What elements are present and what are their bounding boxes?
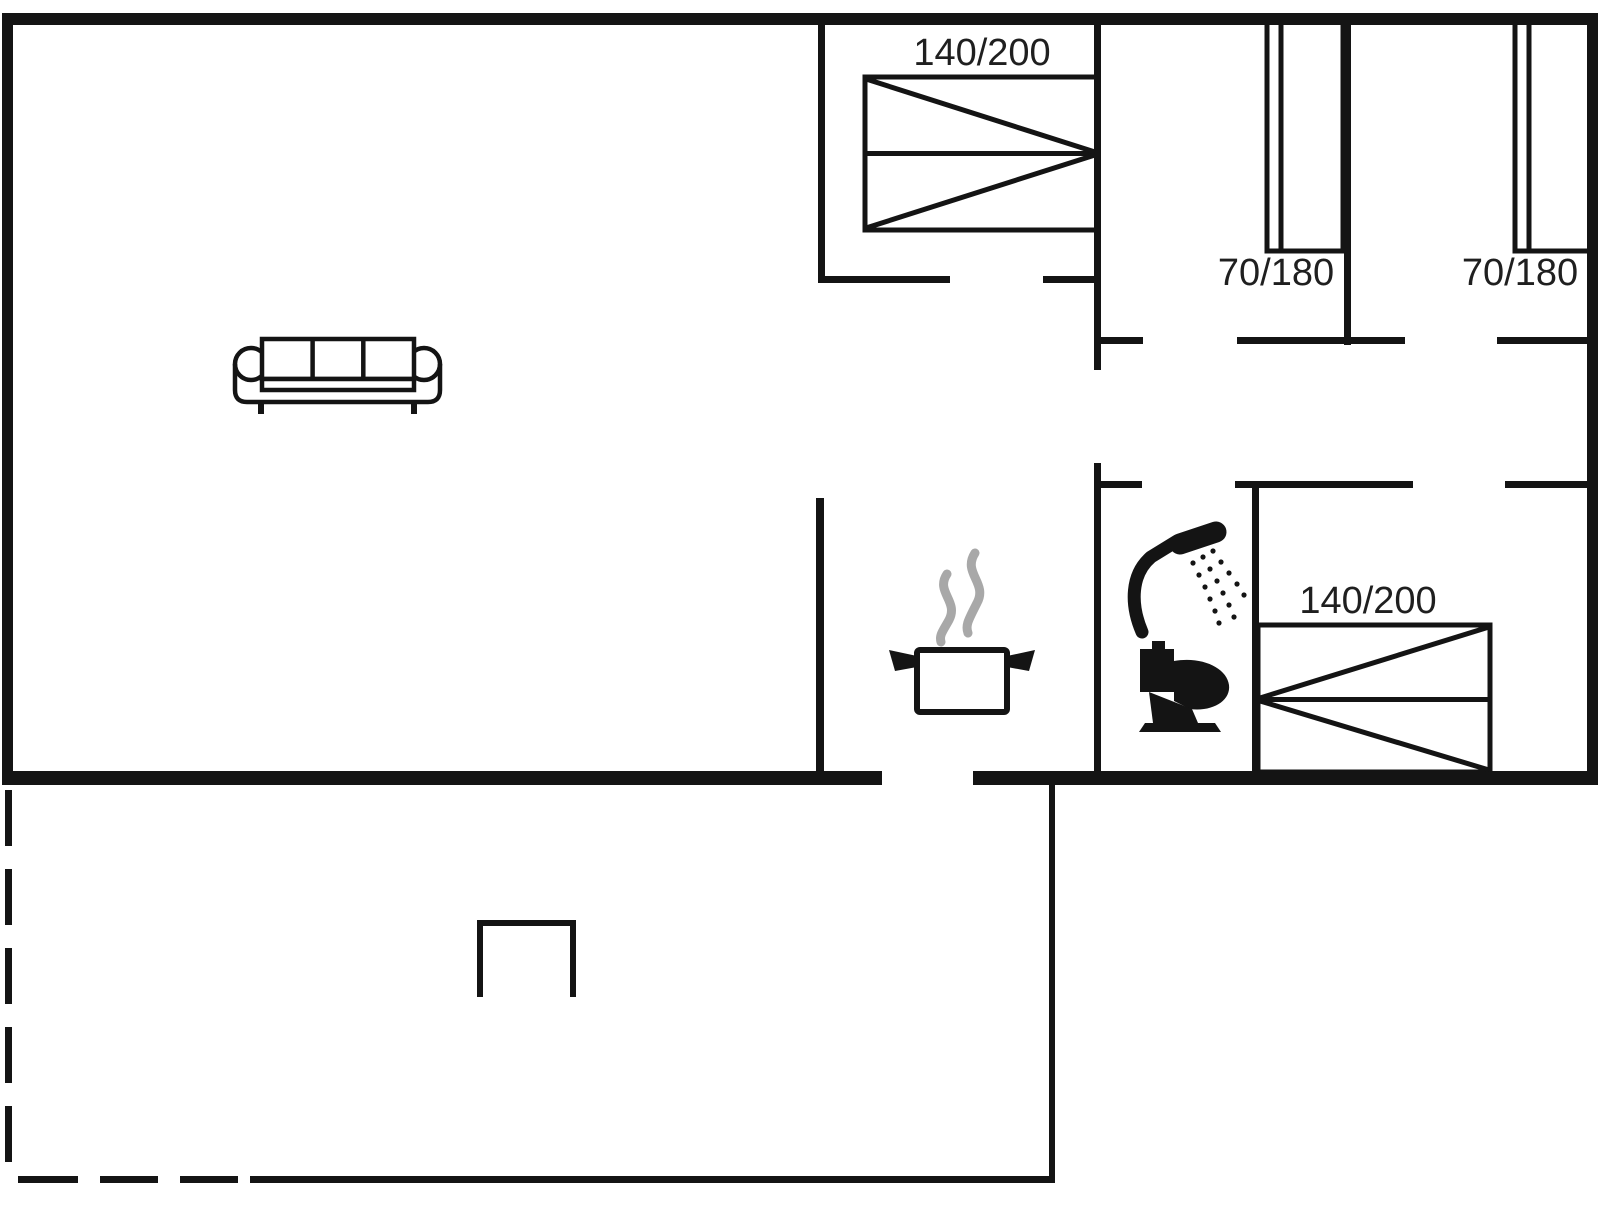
sofa-icon (235, 339, 440, 414)
toilet-foot (1139, 723, 1221, 732)
bed-fold (866, 79, 1095, 152)
bed-outline (1267, 20, 1343, 251)
toilet-icon (1139, 641, 1229, 732)
sofa-leg (411, 402, 417, 414)
bed-fold (866, 155, 1095, 228)
wall-segment (2, 771, 882, 785)
bed-fold (1260, 627, 1489, 698)
floor-plan: 140/200 70/180 70/180 140/200 (0, 0, 1606, 1205)
single-bed-icon (1267, 20, 1343, 251)
shower-icon (1134, 532, 1246, 632)
sofa-seat-band (262, 379, 414, 390)
bed-size-label-right-bedroom: 140/200 (1268, 582, 1468, 620)
double-bed-icon (865, 77, 1097, 230)
single-bed-icon (1515, 20, 1591, 251)
shower-head (1180, 532, 1216, 544)
wall-segment (1237, 337, 1405, 344)
cooking-pot-icon (889, 650, 1035, 712)
wall-segment (1497, 337, 1592, 344)
steam-icon (940, 553, 979, 642)
sofa-leg (258, 402, 264, 414)
double-bed-icon (1258, 625, 1490, 772)
sofa-back-cushions (262, 339, 414, 379)
shower-spray (1190, 548, 1246, 625)
bed-fold (1260, 701, 1489, 770)
terrace-dash (100, 1176, 158, 1183)
toilet-button (1152, 641, 1165, 650)
terrace-dash (18, 1176, 78, 1183)
wall-segment (1505, 481, 1592, 488)
wall-segment (1235, 481, 1413, 488)
wall-segment (816, 498, 824, 772)
toilet-tank (1140, 649, 1174, 692)
toilet-bowl (1174, 660, 1229, 710)
bed-outline (1515, 20, 1591, 251)
wall-segment (1101, 481, 1142, 488)
wall-segment (1094, 463, 1101, 772)
pot-body (917, 650, 1007, 712)
steam-wisp (967, 553, 980, 633)
terrace-step-icon (480, 923, 573, 997)
bed-size-label-small-room-right: 70/180 (1420, 254, 1606, 292)
terrace-dash (180, 1176, 238, 1183)
wall-segment (818, 25, 825, 282)
bed-size-label-small-room-left: 70/180 (1176, 254, 1376, 292)
step-outline (480, 923, 573, 997)
wall-segment (2, 13, 1598, 25)
pot-handle (889, 650, 917, 671)
pot-handle (1007, 650, 1035, 671)
steam-wisp (940, 574, 951, 642)
wall-segment (2, 13, 13, 785)
terrace-edge-right (1049, 784, 1055, 1180)
terrace-boundary (9, 784, 1056, 1183)
bed-size-label-top-bedroom: 140/200 (882, 34, 1082, 72)
shower-arm (1134, 541, 1177, 632)
wall-segment (818, 276, 950, 283)
wall-segment (1097, 337, 1143, 344)
wall-segment (1043, 276, 1100, 283)
terrace-edge-bottom (250, 1176, 1055, 1183)
